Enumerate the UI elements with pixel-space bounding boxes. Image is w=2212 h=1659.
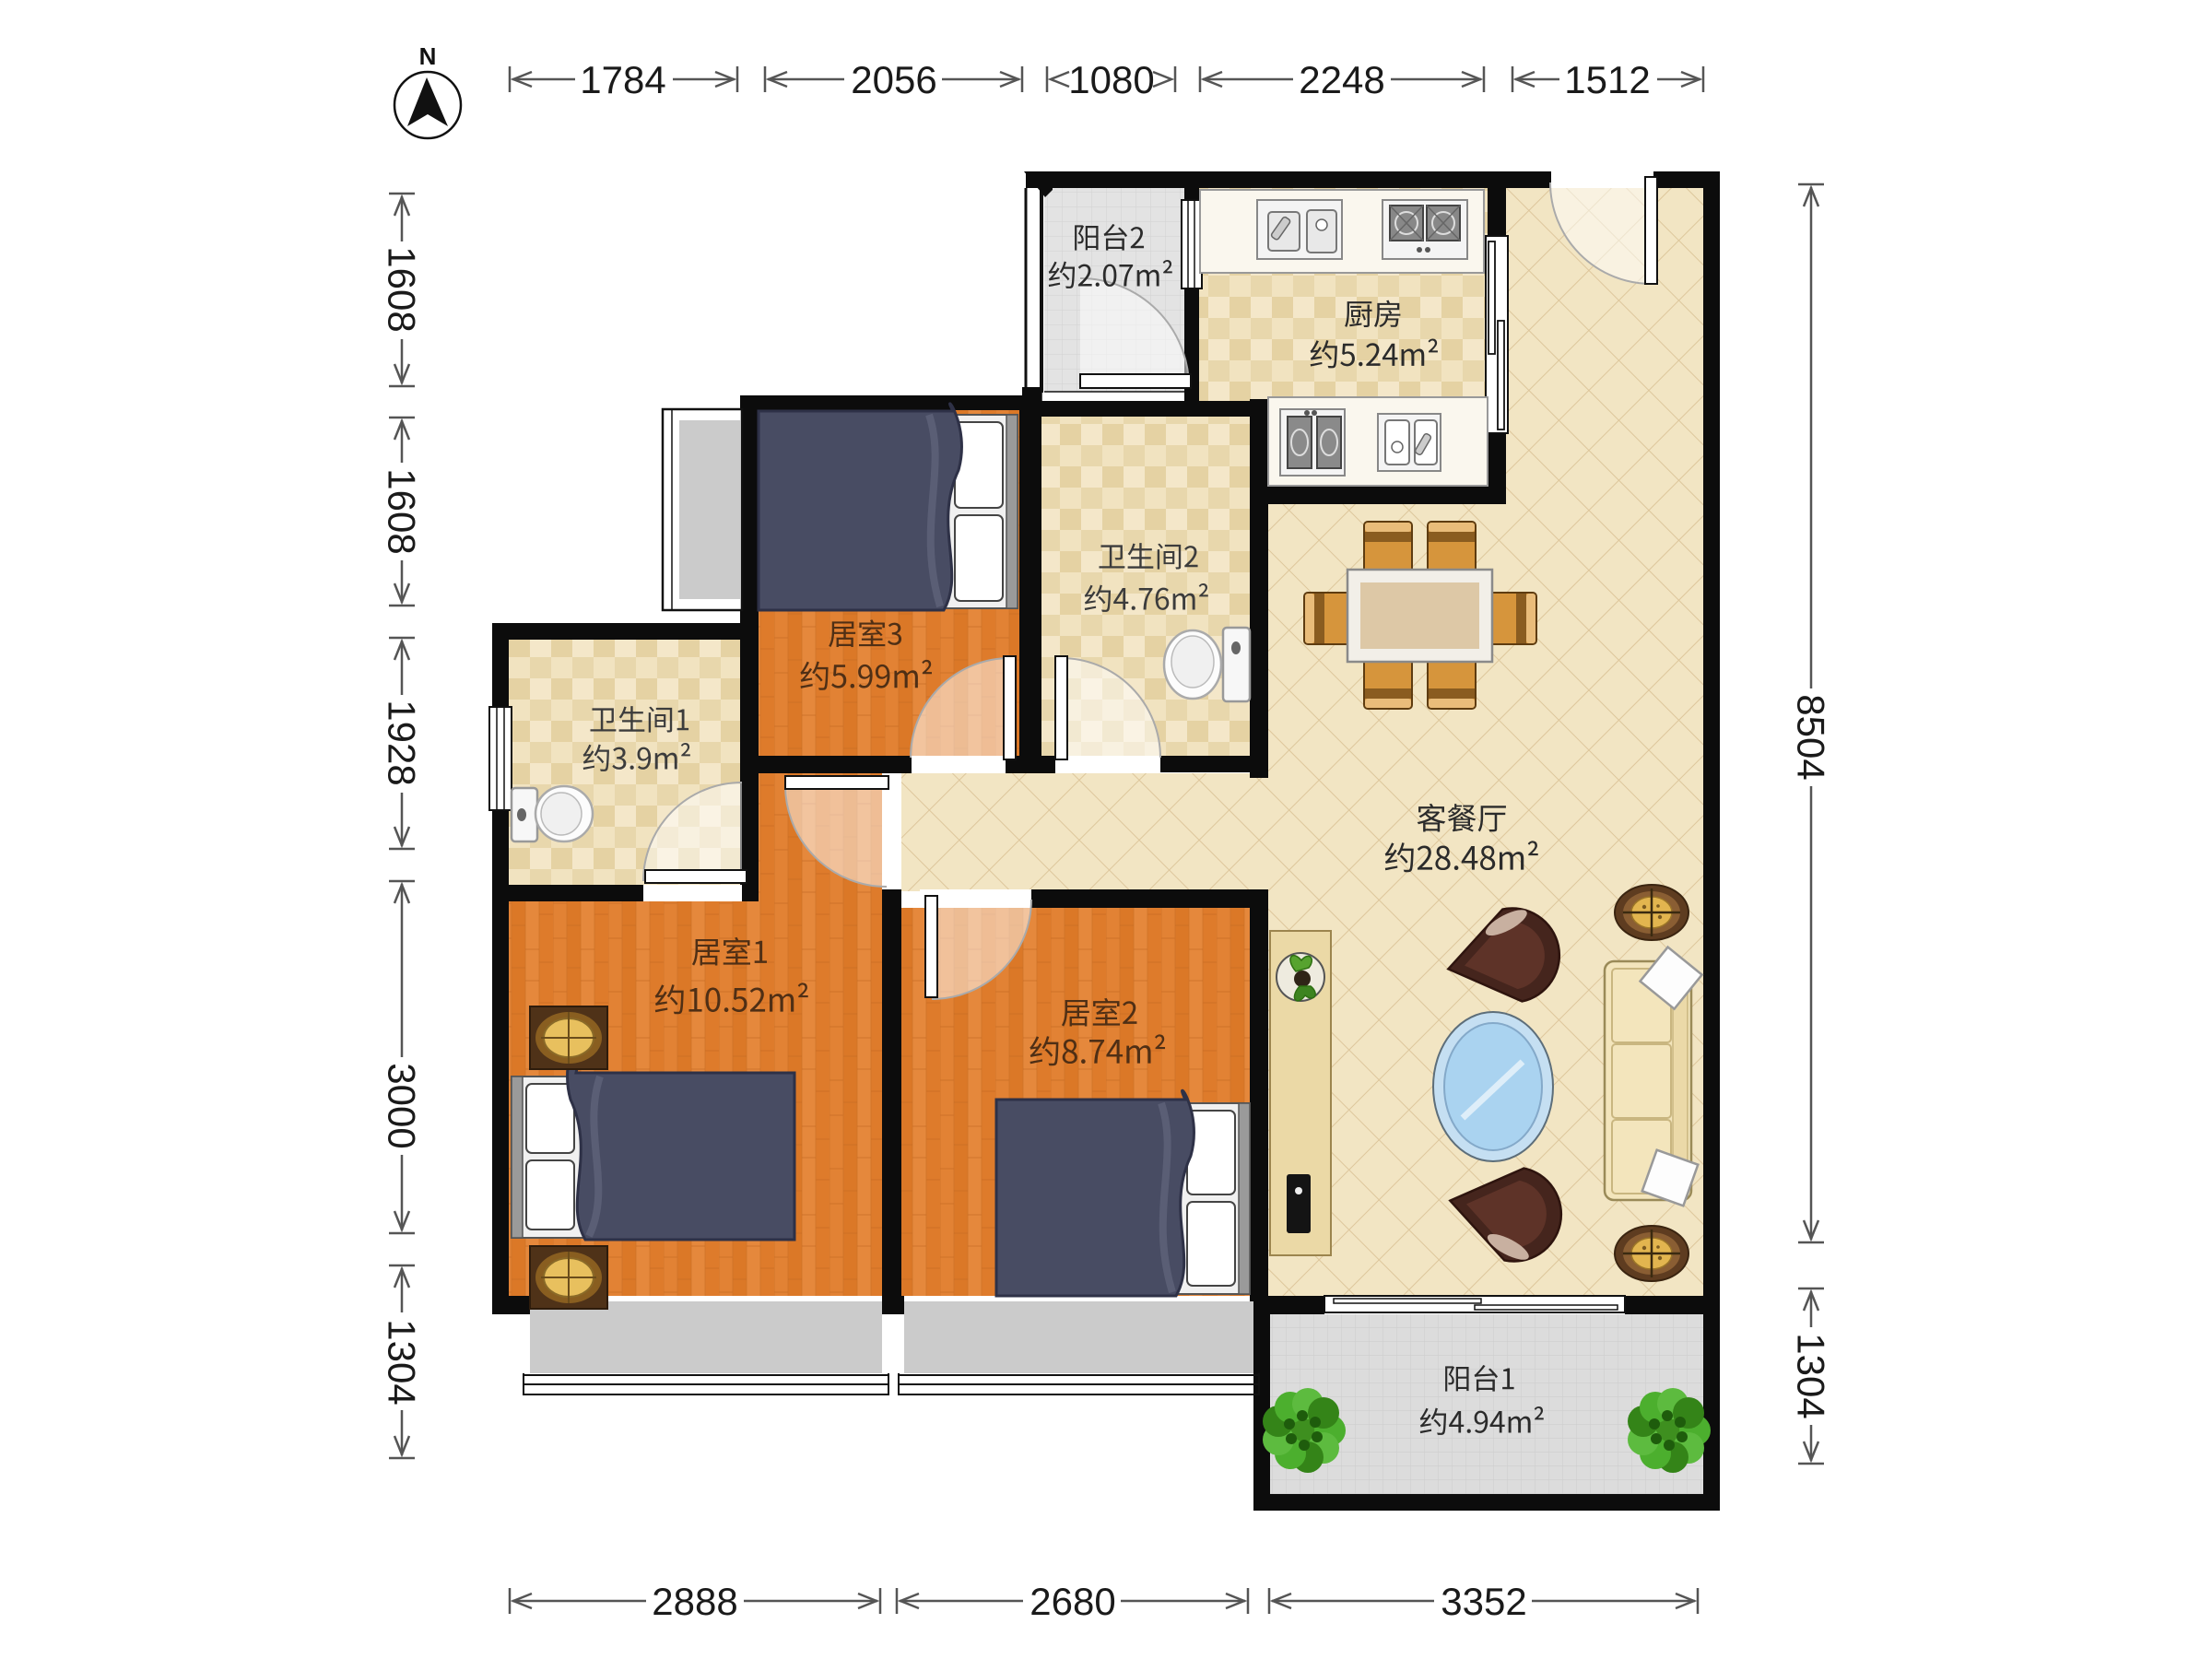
- svg-text:1928: 1928: [381, 700, 424, 785]
- svg-text:2056: 2056: [851, 58, 936, 101]
- svg-text:1080: 1080: [1068, 58, 1154, 101]
- svg-text:1784: 1784: [580, 58, 665, 101]
- svg-text:2248: 2248: [1299, 58, 1384, 101]
- svg-text:N: N: [419, 42, 437, 70]
- svg-text:1608: 1608: [381, 468, 424, 554]
- svg-text:3000: 3000: [381, 1063, 424, 1148]
- svg-text:2680: 2680: [1030, 1580, 1115, 1623]
- svg-text:1512: 1512: [1564, 58, 1650, 101]
- svg-text:1304: 1304: [1790, 1333, 1833, 1418]
- svg-text:2888: 2888: [652, 1580, 737, 1623]
- svg-text:3352: 3352: [1441, 1580, 1526, 1623]
- svg-text:8504: 8504: [1790, 694, 1833, 780]
- svg-text:1608: 1608: [381, 246, 424, 332]
- svg-text:1304: 1304: [381, 1319, 424, 1405]
